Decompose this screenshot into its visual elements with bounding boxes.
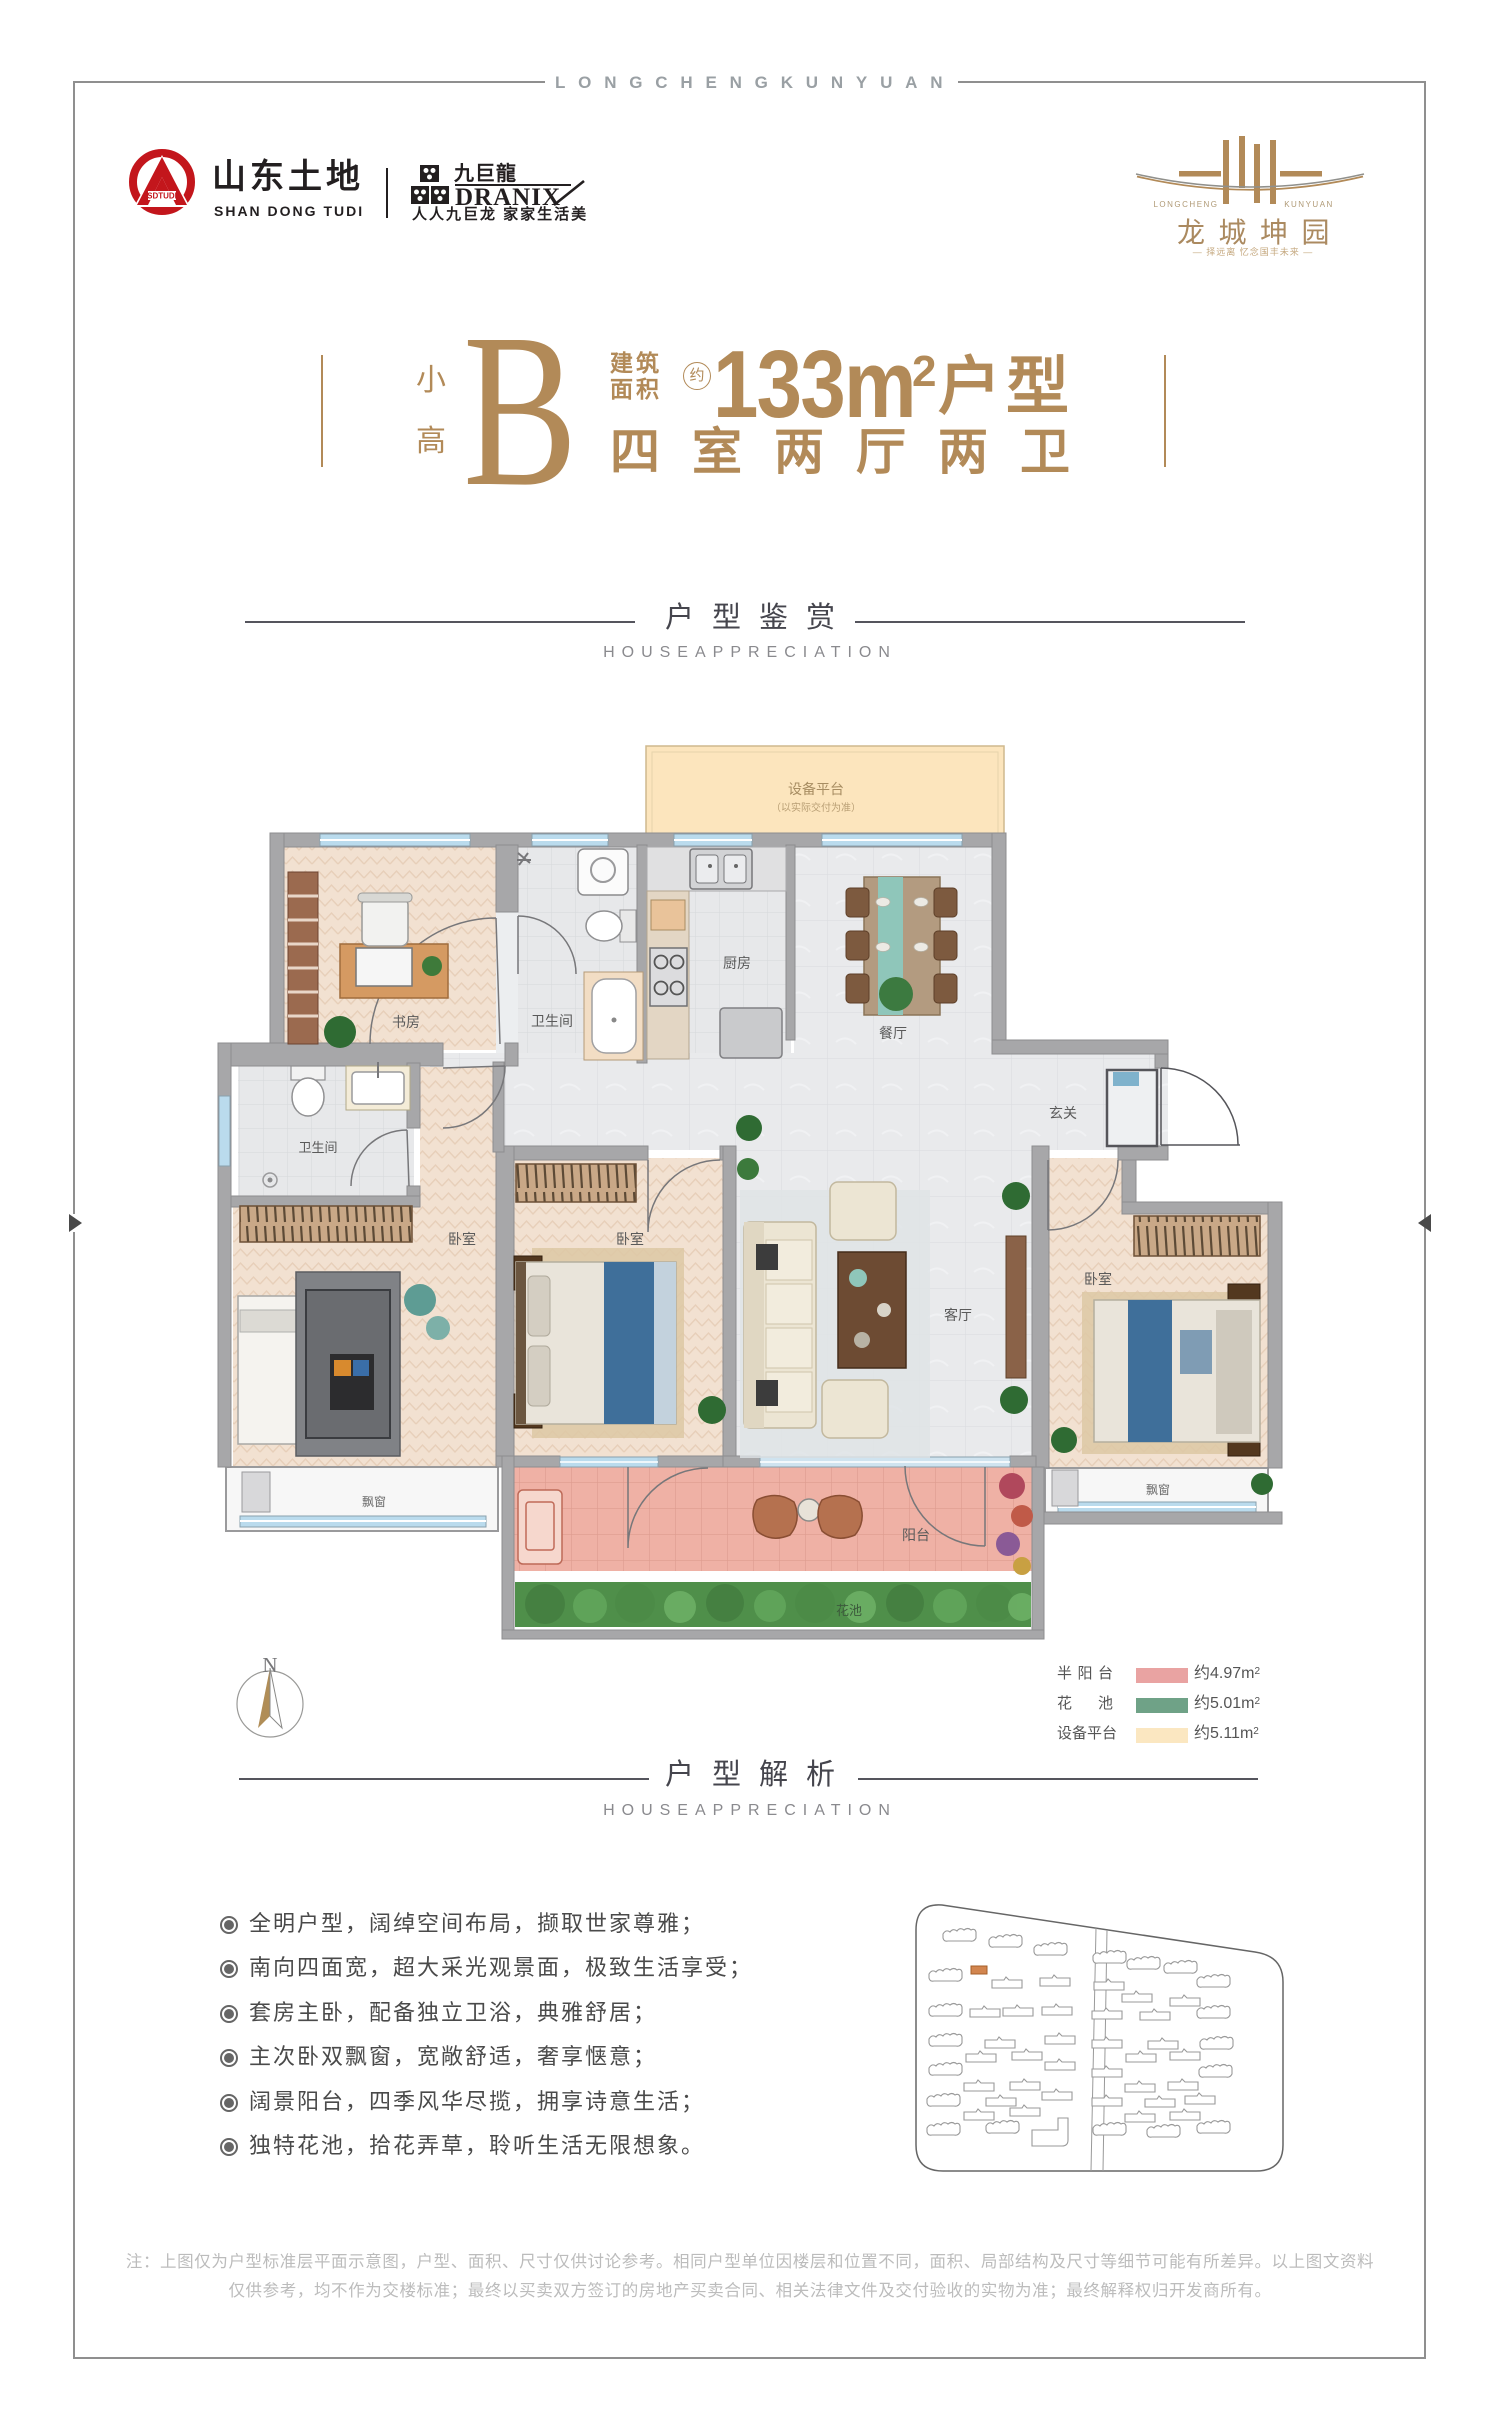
svg-text:卧室: 卧室	[616, 1231, 644, 1247]
svg-text:设备平台: 设备平台	[788, 781, 844, 797]
svg-text:书房: 书房	[392, 1014, 420, 1030]
svg-text:飘窗: 飘窗	[1146, 1483, 1170, 1497]
svg-text:花池: 花池	[836, 1603, 862, 1618]
svg-text:卧室: 卧室	[448, 1231, 476, 1247]
svg-text:飘窗: 飘窗	[362, 1495, 386, 1509]
svg-text:（以实际交付为准）: （以实际交付为准）	[771, 801, 861, 814]
svg-text:厨房: 厨房	[723, 955, 751, 971]
svg-text:玄关: 玄关	[1049, 1105, 1077, 1121]
svg-text:客厅: 客厅	[944, 1307, 972, 1323]
svg-text:N: N	[262, 1653, 277, 1677]
svg-text:卫生间: 卫生间	[531, 1013, 573, 1029]
svg-text:卫生间: 卫生间	[298, 1140, 337, 1155]
svg-text:餐厅: 餐厅	[879, 1025, 907, 1041]
svg-text:卧室: 卧室	[1084, 1271, 1112, 1287]
svg-text:阳台: 阳台	[902, 1527, 930, 1543]
